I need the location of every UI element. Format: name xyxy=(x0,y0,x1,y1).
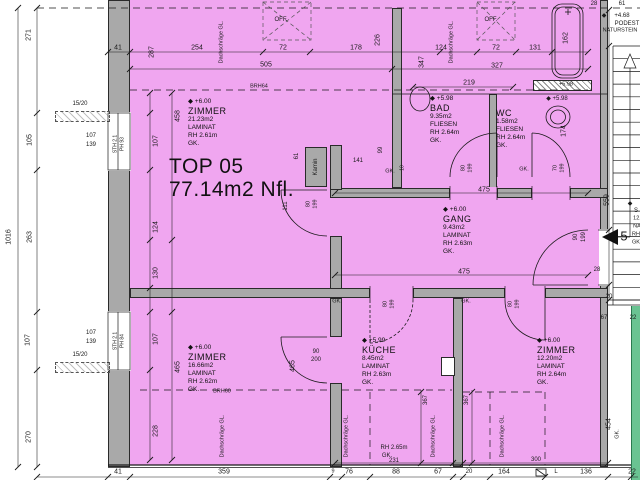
plan-label: 80 xyxy=(508,301,514,307)
room-level: ◆ +6.00 xyxy=(537,337,576,345)
plan-label: 347 xyxy=(419,56,426,68)
room-floor: LAMINAT xyxy=(537,363,576,371)
plan-label: 90 xyxy=(313,349,320,355)
plan-label: 226 xyxy=(375,34,382,46)
room-floor: FLIESEN xyxy=(496,126,525,134)
plan-label: 41 xyxy=(114,469,122,476)
room-ceiling: GK. xyxy=(430,137,459,145)
plan-label: Dachschräge GL. xyxy=(431,415,437,458)
room-name: ZIMMER xyxy=(188,107,227,115)
plan-label: 9 xyxy=(331,469,334,475)
room-level: ◆ +6.00 xyxy=(188,98,227,106)
room-label-zimmer-sw: ◆ +6.00ZIMMER16.66m2LAMINATRH 2.62mGK. xyxy=(188,344,227,394)
fixtures xyxy=(410,4,583,476)
plan-label: 5 xyxy=(620,230,627,243)
plan-label: 458 xyxy=(175,110,182,122)
plan-label: NA xyxy=(633,224,640,230)
room-label-kueche: ◆ +5.99KÜCHE8.45m2LAMINATRH 2.63mGK. xyxy=(362,337,396,387)
room-ceiling: GK. xyxy=(188,140,227,148)
plan-label: 200 xyxy=(311,357,321,363)
plan-label: S xyxy=(634,208,638,214)
plan-label: 107 xyxy=(86,133,96,139)
plan-label: 327 xyxy=(491,63,503,70)
room-floor: LAMINAT xyxy=(443,232,472,240)
plan-label: GK. xyxy=(385,169,394,175)
floor-plan-canvas: TOP 05 77.14m2 Nfl. 41287254721782261247… xyxy=(0,0,640,480)
plan-label: 367 xyxy=(464,395,470,405)
plan-label: 107 xyxy=(25,334,32,346)
plan-label: 199 xyxy=(313,199,319,208)
plan-label: Dachschräge GL. xyxy=(344,415,350,458)
plan-label: 228 xyxy=(153,425,160,437)
plan-label: +4.68 xyxy=(614,13,629,19)
plan-label: 231 xyxy=(389,458,399,464)
plan-label: 139 xyxy=(86,339,96,345)
washbasin-icon xyxy=(410,87,430,111)
room-label-gang: ◆ +6.00GANG9.43m2LAMINATRH 2.63mGK. xyxy=(443,206,472,256)
room-floor: LAMINAT xyxy=(188,370,227,378)
room-name: WC xyxy=(496,109,525,117)
plan-label: 162 xyxy=(563,32,570,44)
floor-plan-page: { "title": {"line1": "TOP 05", "line2": … xyxy=(0,0,640,480)
plan-label: 454 xyxy=(606,418,613,430)
plan-label: 10 xyxy=(401,165,406,171)
plan-label: 22 xyxy=(630,315,637,321)
room-name: GANG xyxy=(443,215,472,223)
room-area: 12.20m2 xyxy=(537,355,576,363)
plan-label: 28 xyxy=(594,267,601,273)
room-area: 8.45m2 xyxy=(362,355,396,363)
plan-label: 124 xyxy=(153,221,160,233)
plan-label: 139 xyxy=(86,142,96,148)
plan-label: 164 xyxy=(498,469,510,476)
plan-label: OFF. xyxy=(485,17,498,23)
plan-label: 67 xyxy=(434,469,442,476)
plan-label: 141 xyxy=(353,158,363,164)
plan-label: GK. xyxy=(615,429,621,438)
plan-label: GK. xyxy=(332,299,341,305)
plan-label: GK. xyxy=(519,167,528,173)
plan-label: 465 xyxy=(290,360,297,372)
plan-label: 15/20 xyxy=(72,101,87,107)
plan-label: Dachschräge GL. xyxy=(500,415,506,458)
plan-label: 505 xyxy=(260,62,272,69)
room-level: ◆ +6.00 xyxy=(188,344,227,352)
plan-label: 199 xyxy=(515,299,521,308)
plan-label: 22 xyxy=(628,469,636,476)
plan-label: Kamin xyxy=(313,158,319,175)
plan-label: RH 2.65m xyxy=(380,445,407,451)
plan-label: 174 xyxy=(561,125,568,137)
room-height: RH 2.61m xyxy=(188,132,227,140)
plan-label: PH 93 xyxy=(121,137,126,151)
plan-label: 88 xyxy=(392,469,400,476)
plan-label: 270 xyxy=(26,431,33,443)
room-ceiling: GK. xyxy=(537,379,576,387)
plan-label: 559 xyxy=(604,194,611,206)
room-ceiling: GK. xyxy=(362,379,396,387)
plan-label: 12. xyxy=(633,216,640,222)
plan-label: ◆ xyxy=(602,13,607,19)
room-height: RH 2.63m xyxy=(443,240,472,248)
plan-label: 367 xyxy=(423,395,429,405)
plan-label: 107 xyxy=(153,135,160,147)
plan-label: 199 xyxy=(468,163,474,172)
plan-label: 20 xyxy=(466,469,473,475)
plan-label: 263 xyxy=(27,231,34,243)
room-height: RH 2.62m xyxy=(188,378,227,386)
plan-label: 28 xyxy=(591,1,598,7)
plan-label: 199 xyxy=(581,232,587,242)
plan-label: 41 xyxy=(114,45,122,52)
plan-label: ◆ +5.98 xyxy=(546,96,567,102)
room-floor: LAMINAT xyxy=(362,363,396,371)
room-floor: FLIESEN xyxy=(430,121,459,129)
plan-label: 80 xyxy=(383,301,389,307)
room-floor: LAMINAT xyxy=(188,124,227,132)
plan-label: Dachschräge GL. xyxy=(220,415,226,458)
room-name: BAD xyxy=(430,104,459,112)
room-level: ◆ +6.00 xyxy=(443,206,472,214)
room-label-zimmer-nw: ◆ +6.00ZIMMER21.23m2LAMINATRH 2.61mGK. xyxy=(188,98,227,148)
room-area: 9.35m2 xyxy=(430,113,459,121)
plan-linework xyxy=(0,0,640,480)
plan-label: 72 xyxy=(492,45,500,52)
room-height: RH 2.64m xyxy=(430,129,459,137)
plan-label: 80 xyxy=(461,165,467,171)
plan-label: 465 xyxy=(175,361,182,373)
plan-label: 300 xyxy=(531,457,541,463)
plan-label: 199 xyxy=(560,163,566,172)
room-label-zimmer-se: ◆ +6.00ZIMMER12.20m2LAMINATRH 2.64mGK. xyxy=(537,337,576,387)
plan-label: 90 xyxy=(573,234,579,241)
plan-label: 67 xyxy=(601,315,608,321)
plan-label: 475 xyxy=(478,187,490,194)
plan-label: 287 xyxy=(149,46,156,58)
plan-label: GK xyxy=(632,240,640,246)
room-area: 9.43m2 xyxy=(443,224,472,232)
plan-label: 219 xyxy=(463,80,475,87)
plan-label: 105 xyxy=(27,134,34,146)
plan-label: ◆ xyxy=(628,201,633,207)
room-height: RH 2.63m xyxy=(362,371,396,379)
room-label-wc: WC1.58m2FLIESENRH 2.64mGK. xyxy=(496,108,525,150)
room-ceiling: GK. xyxy=(188,386,227,394)
room-level: ◆ +5.98 xyxy=(430,95,459,103)
plan-label: 254 xyxy=(191,45,203,52)
plan-label: 15/20 xyxy=(72,352,87,358)
room-height: RH 2.64m xyxy=(537,371,576,379)
plan-label: 107 xyxy=(153,333,160,345)
room-area: 21.23m2 xyxy=(188,116,227,124)
room-level: ◆ +5.99 xyxy=(362,337,396,345)
room-area: 16.66m2 xyxy=(188,362,227,370)
room-ceiling: GK. xyxy=(496,142,525,150)
room-ceiling: GK. xyxy=(443,248,472,256)
apartment-id: TOP 05 xyxy=(169,155,294,178)
plan-label: RH xyxy=(632,232,640,238)
plan-label: 136 xyxy=(580,469,592,476)
plan-label: 76 xyxy=(345,469,353,476)
apartment-title: TOP 05 77.14m2 Nfl. xyxy=(169,155,294,201)
room-name: KÜCHE xyxy=(362,346,396,354)
plan-label: NATURSTEIN xyxy=(603,28,638,34)
plan-label: 61 xyxy=(619,1,626,7)
plan-label: 199 xyxy=(390,299,396,308)
apartment-area: 77.14m2 Nfl. xyxy=(169,178,294,201)
room-label-bad: ◆ +5.98BAD9.35m2FLIESENRH 2.64mGK. xyxy=(430,95,459,145)
plan-label: BRH64 xyxy=(250,84,268,90)
plan-label: PH 84 xyxy=(121,334,126,348)
dimension-lines xyxy=(15,5,638,480)
plan-label: 359 xyxy=(218,469,230,476)
plan-label: 61 xyxy=(294,153,300,160)
plan-label: 99 xyxy=(378,147,384,154)
plan-label: Dachschräge GL. xyxy=(449,21,455,64)
plan-label: STH 2.1 xyxy=(114,135,119,153)
plan-label: 475 xyxy=(458,269,470,276)
plan-label: L xyxy=(554,469,557,475)
plan-label: PODEST xyxy=(615,21,640,27)
plan-label: 124 xyxy=(435,45,447,52)
plan-label: OFF. xyxy=(275,17,288,23)
plan-label: 107 xyxy=(86,330,96,336)
room-name: ZIMMER xyxy=(537,346,576,354)
room-name: ZIMMER xyxy=(188,353,227,361)
plan-label: Dachschräge GL. xyxy=(219,21,225,64)
room-area: 1.58m2 xyxy=(496,118,525,126)
plan-label: +5.98 xyxy=(559,82,573,88)
plan-label: 1016 xyxy=(6,229,13,245)
plan-label: 271 xyxy=(26,29,33,41)
plan-label: 178 xyxy=(350,45,362,52)
plan-label: 130 xyxy=(153,267,160,279)
plan-label: 111 xyxy=(283,201,289,210)
plan-label: 70 xyxy=(553,165,559,171)
plan-label: 72 xyxy=(279,45,287,52)
plan-label: 80 xyxy=(306,201,312,207)
plan-label: 131 xyxy=(529,45,541,52)
plan-label: 20 xyxy=(606,294,613,300)
plan-label: GK. xyxy=(461,299,470,305)
room-height: RH 2.64m xyxy=(496,134,525,142)
plan-label: STH 2.1 xyxy=(114,332,119,350)
